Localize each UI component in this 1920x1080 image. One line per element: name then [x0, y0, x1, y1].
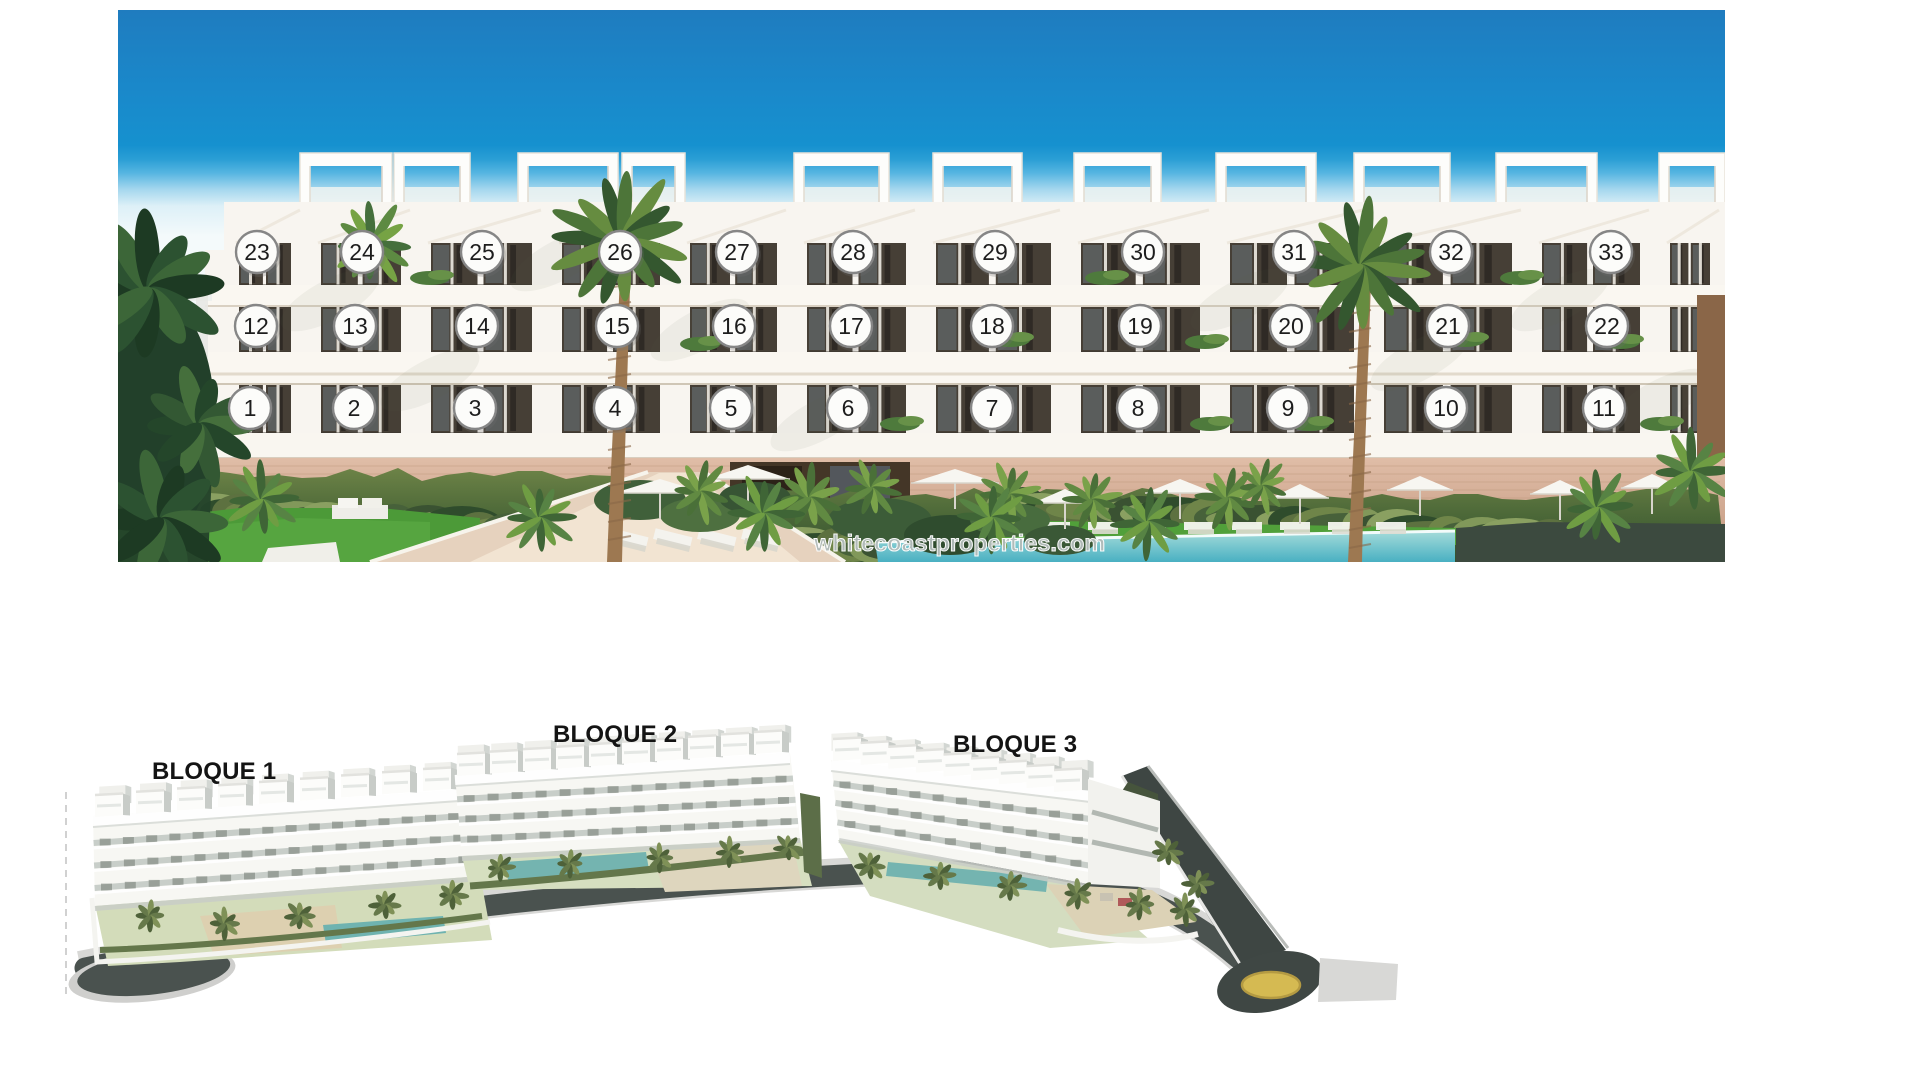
svg-text:21: 21	[1435, 313, 1461, 339]
svg-text:6: 6	[842, 395, 855, 421]
svg-text:19: 19	[1127, 313, 1153, 339]
svg-text:5: 5	[725, 395, 738, 421]
svg-text:30: 30	[1130, 239, 1156, 265]
svg-text:33: 33	[1598, 239, 1624, 265]
svg-text:11: 11	[1592, 395, 1616, 421]
svg-text:26: 26	[607, 239, 633, 265]
svg-text:8: 8	[1132, 395, 1145, 421]
svg-text:BLOQUE 2: BLOQUE 2	[553, 721, 677, 748]
svg-text:18: 18	[979, 313, 1005, 339]
svg-text:7: 7	[986, 395, 999, 421]
svg-text:BLOQUE 1: BLOQUE 1	[152, 758, 276, 785]
svg-text:23: 23	[244, 239, 270, 265]
svg-text:14: 14	[464, 313, 490, 339]
svg-text:12: 12	[243, 313, 269, 339]
svg-text:28: 28	[840, 239, 866, 265]
svg-text:31: 31	[1281, 239, 1307, 265]
svg-text:1: 1	[244, 395, 257, 421]
svg-text:whitecoastproperties.com: whitecoastproperties.com	[813, 530, 1105, 556]
svg-text:32: 32	[1438, 239, 1464, 265]
svg-text:17: 17	[838, 313, 864, 339]
svg-text:10: 10	[1433, 395, 1459, 421]
svg-text:16: 16	[721, 313, 747, 339]
svg-text:2: 2	[348, 395, 361, 421]
svg-text:9: 9	[1282, 395, 1295, 421]
svg-text:BLOQUE 3: BLOQUE 3	[953, 731, 1077, 758]
svg-text:27: 27	[724, 239, 750, 265]
svg-text:20: 20	[1278, 313, 1304, 339]
svg-text:4: 4	[609, 395, 622, 421]
svg-text:25: 25	[469, 239, 495, 265]
svg-text:22: 22	[1594, 313, 1620, 339]
svg-text:29: 29	[982, 239, 1008, 265]
svg-text:3: 3	[469, 395, 482, 421]
svg-text:24: 24	[349, 239, 375, 265]
svg-text:15: 15	[604, 313, 630, 339]
svg-text:13: 13	[342, 313, 368, 339]
